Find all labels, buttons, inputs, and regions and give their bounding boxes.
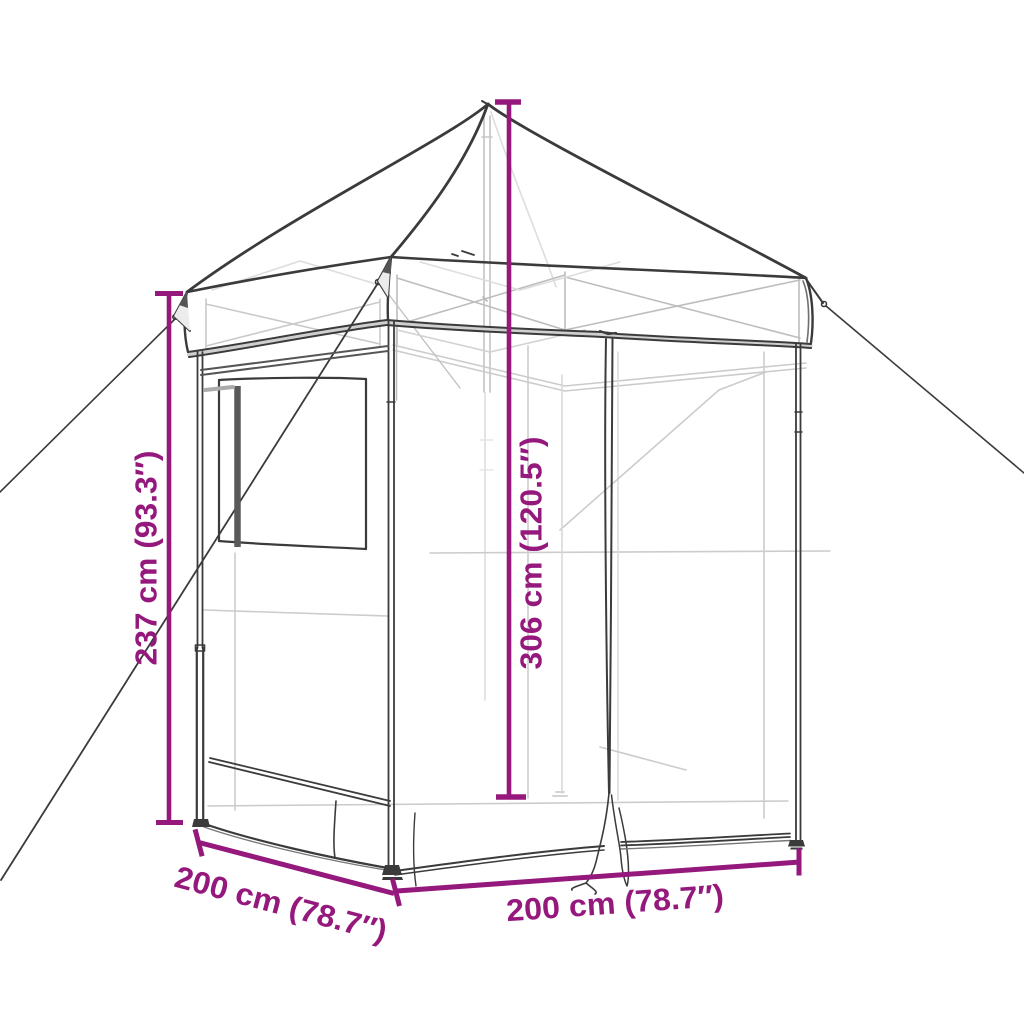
svg-text:237 cm (93.3″): 237 cm (93.3″) <box>129 451 164 666</box>
svg-text:306 cm (120.5″): 306 cm (120.5″) <box>514 437 549 670</box>
